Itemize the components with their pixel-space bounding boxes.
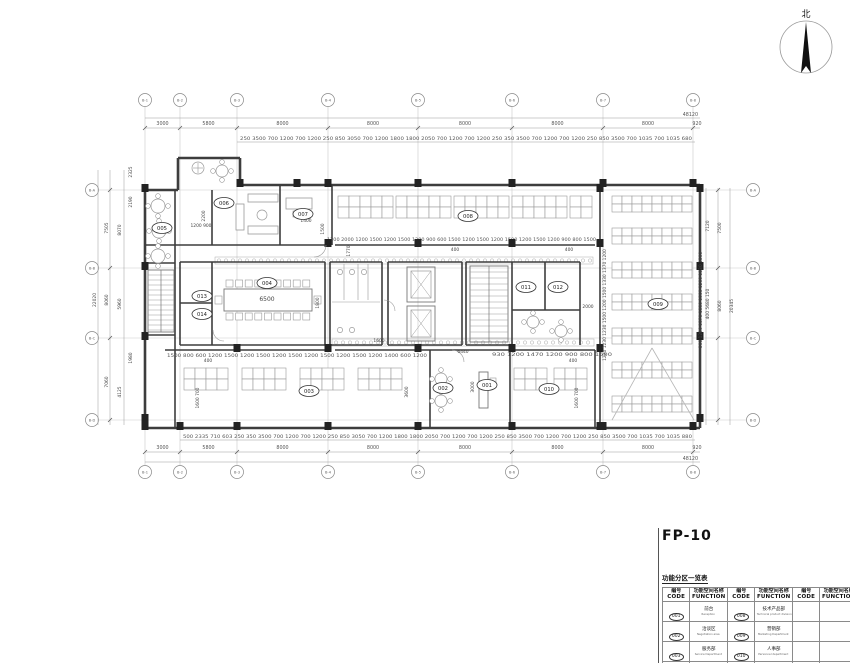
room-marker-005: 005 — [152, 223, 172, 234]
legend-function-cell: 前台Reception — [690, 602, 728, 622]
svg-text:B-2: B-2 — [177, 98, 183, 102]
svg-text:8000: 8000 — [276, 445, 288, 451]
svg-text:002: 002 — [438, 386, 448, 392]
legend-function-cell — [820, 642, 850, 662]
svg-text:1500: 1500 — [320, 223, 326, 234]
room-code-badge: 010 — [734, 653, 749, 661]
svg-text:920: 920 — [692, 445, 701, 451]
svg-text:20345: 20345 — [729, 299, 735, 313]
svg-text:1800: 1800 — [315, 297, 321, 308]
svg-text:7505: 7505 — [104, 222, 110, 233]
svg-text:005: 005 — [157, 226, 167, 232]
room-marker-009: 009 — [648, 299, 668, 310]
svg-text:北: 北 — [801, 9, 810, 20]
svg-text:3000: 3000 — [470, 381, 476, 392]
north-arrow: 北 — [780, 9, 832, 73]
svg-text:8000: 8000 — [367, 445, 379, 451]
svg-text:B-1: B-1 — [142, 470, 148, 474]
svg-text:4125: 4125 — [117, 386, 123, 397]
room-marker-014: 014 — [192, 309, 212, 320]
svg-text:B-1: B-1 — [142, 98, 148, 102]
svg-text:B-4: B-4 — [325, 98, 332, 102]
legend-function-cell: 营销部Marketing Department — [755, 622, 793, 642]
svg-text:8000: 8000 — [642, 121, 654, 127]
svg-text:22020: 22020 — [92, 293, 98, 307]
legend-function-cell: 技术产品部Technical product division — [755, 602, 793, 622]
svg-text:3600: 3600 — [404, 386, 410, 397]
legend-row: 003服务部Service Department010人事部Personnel … — [663, 642, 850, 662]
svg-text:B-D: B-D — [89, 418, 96, 422]
svg-text:1980: 1980 — [128, 352, 134, 363]
svg-text:8070: 8070 — [117, 224, 123, 235]
legend-row: 001前台Reception008技术产品部Technical product … — [663, 602, 850, 622]
svg-text:400: 400 — [204, 358, 213, 364]
svg-text:1200 2000 1200 1500 1200 1500: 1200 2000 1200 1500 1200 1500 1200 900 6… — [327, 237, 596, 242]
room-marker-010: 010 — [539, 384, 559, 395]
room-marker-013: 013 — [192, 291, 212, 302]
svg-text:B-A: B-A — [89, 188, 96, 192]
legend-function-cell: 人事部Personnel department — [755, 642, 793, 662]
svg-text:7120: 7120 — [705, 220, 711, 231]
legend-row: 002洽谈区Negotiation area009营销部Marketing De… — [663, 622, 850, 642]
svg-text:3000: 3000 — [156, 445, 168, 451]
svg-text:B-2: B-2 — [177, 470, 183, 474]
svg-text:B-B: B-B — [89, 266, 96, 270]
svg-text:011: 011 — [521, 285, 531, 291]
svg-text:1200 900: 1200 900 — [191, 223, 212, 229]
room-marker-007: 007 — [293, 209, 313, 220]
svg-text:500 2335 710 603 250 350 3500: 500 2335 710 603 250 350 3500 700 1200 7… — [183, 434, 692, 439]
svg-text:2200: 2200 — [201, 210, 207, 221]
svg-text:1770: 1770 — [346, 245, 352, 256]
svg-text:003: 003 — [304, 389, 314, 395]
svg-text:1500 800 600 1200 1500 1200 15: 1500 800 600 1200 1500 1200 1500 1200 15… — [167, 353, 427, 358]
legend-code-cell: 002 — [663, 622, 690, 642]
legend-code-cell: 008 — [728, 602, 755, 622]
legend-code-cell: 001 — [663, 602, 690, 622]
room-marker-002: 002 — [433, 383, 453, 394]
room-marker-006: 006 — [214, 198, 234, 209]
svg-text:8000: 8000 — [642, 445, 654, 451]
legend-block: FP-10 功能分区一览表 编号CODE功能空间名称FUNCTION编号CODE… — [662, 528, 850, 663]
legend-header-function: 功能空间名称FUNCTION — [820, 588, 850, 602]
svg-text:B-A: B-A — [750, 188, 757, 192]
svg-text:920: 920 — [692, 121, 701, 127]
svg-text:007: 007 — [298, 212, 308, 218]
legend-code-cell — [793, 602, 820, 622]
svg-text:B-D: B-D — [750, 418, 757, 422]
legend-code-cell: 010 — [728, 642, 755, 662]
svg-text:B-6: B-6 — [509, 98, 516, 102]
svg-text:400: 400 — [565, 247, 574, 253]
room-code-badge: 003 — [669, 653, 684, 661]
svg-text:400: 400 — [451, 247, 460, 253]
svg-text:B-8: B-8 — [690, 470, 697, 474]
svg-text:8000: 8000 — [551, 121, 563, 127]
svg-text:48120: 48120 — [683, 456, 698, 462]
svg-text:B-8: B-8 — [690, 98, 697, 102]
svg-text:009: 009 — [653, 302, 663, 308]
svg-text:012: 012 — [553, 285, 563, 291]
legend-function-cell — [820, 602, 850, 622]
legend-header-function: 功能空间名称FUNCTION — [690, 588, 728, 602]
svg-text:8000: 8000 — [459, 445, 471, 451]
legend-header-code: 编号CODE — [728, 588, 755, 602]
svg-text:B-4: B-4 — [325, 470, 332, 474]
svg-text:B-3: B-3 — [234, 98, 240, 102]
svg-text:8000: 8000 — [551, 445, 563, 451]
svg-text:B-5: B-5 — [415, 98, 421, 102]
svg-text:8060: 8060 — [717, 300, 723, 311]
svg-text:1600: 1600 — [373, 338, 384, 344]
svg-text:2000: 2000 — [582, 304, 593, 310]
room-marker-004: 004 — [257, 278, 277, 289]
svg-text:400: 400 — [569, 358, 578, 364]
svg-text:48120: 48120 — [683, 112, 698, 118]
room-code-badge: 002 — [669, 633, 684, 641]
legend-code-cell: 003 — [663, 642, 690, 662]
legend-function-cell: 洽谈区Negotiation area — [690, 622, 728, 642]
svg-text:B-7: B-7 — [600, 470, 606, 474]
legend-header-code: 编号CODE — [793, 588, 820, 602]
svg-text:B-7: B-7 — [600, 98, 606, 102]
grid-bubbles: B-1B-1B-2B-2B-3B-3B-4B-4B-5B-5B-6B-6B-7B… — [86, 94, 760, 479]
svg-text:8000: 8000 — [276, 121, 288, 127]
legend-border-line — [658, 528, 659, 663]
svg-text:2325: 2325 — [128, 166, 134, 177]
svg-text:B-C: B-C — [750, 336, 757, 340]
svg-text:B-C: B-C — [89, 336, 96, 340]
legend-code-cell — [793, 622, 820, 642]
svg-text:014: 014 — [197, 312, 208, 318]
svg-text:1600 700: 1600 700 — [195, 387, 201, 408]
legend-table-title: 功能分区一览表 — [662, 572, 708, 584]
room-code-badge: 009 — [734, 633, 749, 641]
svg-text:8060: 8060 — [104, 294, 110, 305]
svg-text:006: 006 — [219, 201, 229, 207]
svg-text:B-B: B-B — [750, 266, 757, 270]
svg-text:B-3: B-3 — [234, 470, 240, 474]
svg-text:1600 700: 1600 700 — [574, 387, 580, 408]
room-code-badge: 001 — [669, 613, 684, 621]
drawing-number: FP-10 — [662, 528, 850, 544]
svg-text:5800: 5800 — [202, 445, 214, 451]
svg-text:500 1200 1370 1330 1500 1200 1: 500 1200 1370 1330 1500 1200 1230 1500 — [698, 252, 704, 349]
svg-text:400 5680 150: 400 5680 150 — [705, 288, 711, 319]
svg-text:1220 1230 1230 1500 1200 1500: 1220 1230 1230 1500 1200 1500 1330 1370 … — [602, 249, 608, 361]
svg-text:010: 010 — [544, 387, 554, 393]
svg-text:6500: 6500 — [259, 296, 274, 303]
svg-text:5800: 5800 — [202, 121, 214, 127]
svg-text:5960: 5960 — [117, 298, 123, 309]
svg-text:6440: 6440 — [457, 349, 468, 355]
room-marker-008: 008 — [458, 211, 478, 222]
svg-text:008: 008 — [463, 214, 473, 220]
svg-text:8000: 8000 — [367, 121, 379, 127]
room-marker-012: 012 — [548, 282, 568, 293]
drawing-canvas: B-1B-1B-2B-2B-3B-3B-4B-4B-5B-5B-6B-6B-7B… — [0, 0, 850, 663]
room-marker-003: 003 — [299, 386, 319, 397]
svg-text:013: 013 — [197, 294, 207, 300]
svg-text:B-6: B-6 — [509, 470, 516, 474]
room-marker-001: 001 — [477, 380, 497, 391]
legend-function-cell: 服务部Service Department — [690, 642, 728, 662]
svg-text:B-5: B-5 — [415, 470, 421, 474]
svg-text:7500: 7500 — [717, 222, 723, 233]
svg-text:3000: 3000 — [156, 121, 168, 127]
room-marker-011: 011 — [516, 282, 536, 293]
svg-text:004: 004 — [262, 281, 273, 287]
room-code-badge: 008 — [734, 613, 749, 621]
function-zone-table: 编号CODE功能空间名称FUNCTION编号CODE功能空间名称FUNCTION… — [662, 587, 850, 663]
svg-text:7060: 7060 — [104, 376, 110, 387]
legend-code-cell — [793, 642, 820, 662]
legend-header-code: 编号CODE — [663, 588, 690, 602]
svg-text:8000: 8000 — [459, 121, 471, 127]
legend-function-cell — [820, 622, 850, 642]
legend-code-cell: 009 — [728, 622, 755, 642]
svg-text:001: 001 — [482, 383, 492, 389]
svg-text:250 3500 700 1200 700 1200 250: 250 3500 700 1200 700 1200 250 850 3050 … — [240, 136, 692, 141]
svg-text:2190: 2190 — [128, 196, 134, 207]
legend-header-function: 功能空间名称FUNCTION — [755, 588, 793, 602]
